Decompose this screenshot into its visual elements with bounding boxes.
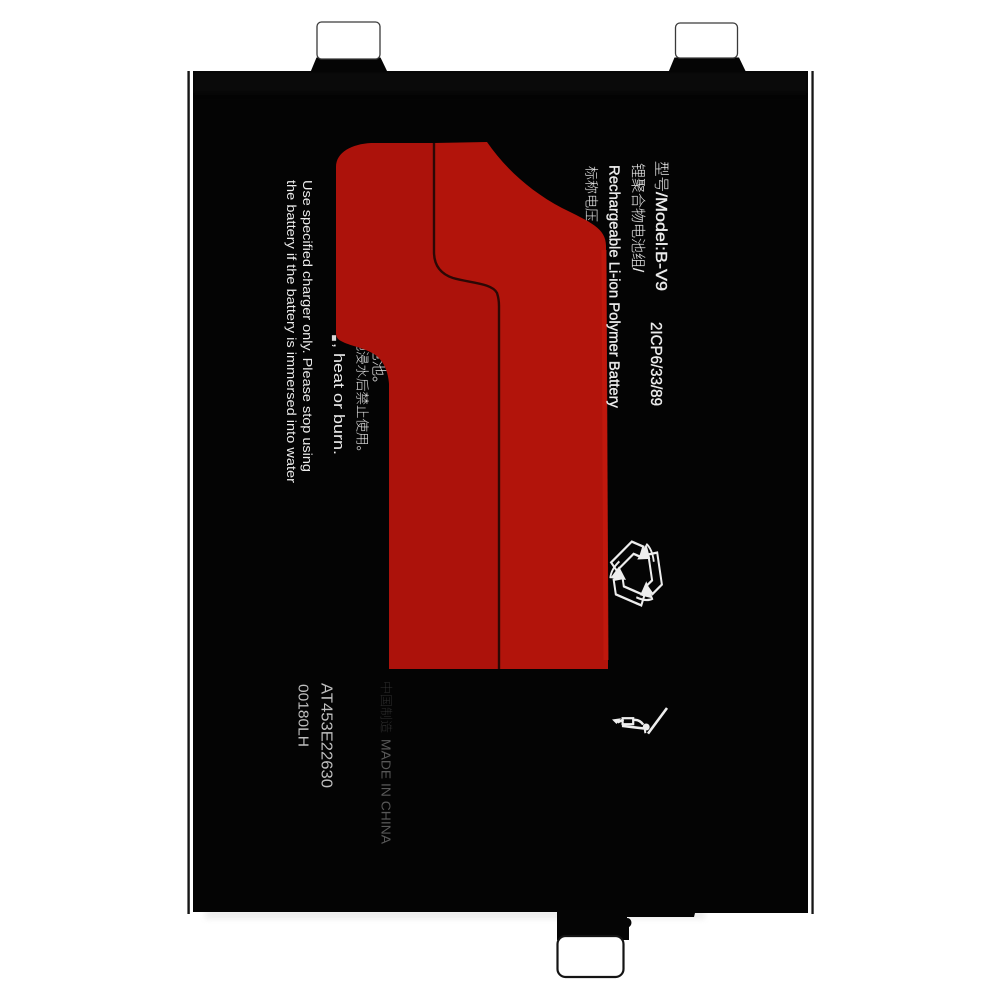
svg-text:AT453E22630: AT453E22630 bbox=[318, 683, 335, 788]
svg-text:Use specified charger only. Pl: Use specified charger only. Please stop … bbox=[300, 180, 315, 472]
svg-text:, heat or burn.: , heat or burn. bbox=[330, 343, 346, 455]
svg-text:the battery if the battery is: the battery if the battery is immersed i… bbox=[284, 180, 299, 484]
svg-text:2ICP6/33/89: 2ICP6/33/89 bbox=[647, 322, 664, 406]
svg-text:MADE IN CHINA: MADE IN CHINA bbox=[379, 739, 394, 844]
svg-text:/Model:B-V9: /Model:B-V9 bbox=[652, 192, 669, 291]
svg-text:00180LH: 00180LH bbox=[295, 684, 312, 747]
svg-text:Rechargeable Li-ion Polymer Ba: Rechargeable Li-ion Polymer Battery bbox=[606, 165, 623, 408]
